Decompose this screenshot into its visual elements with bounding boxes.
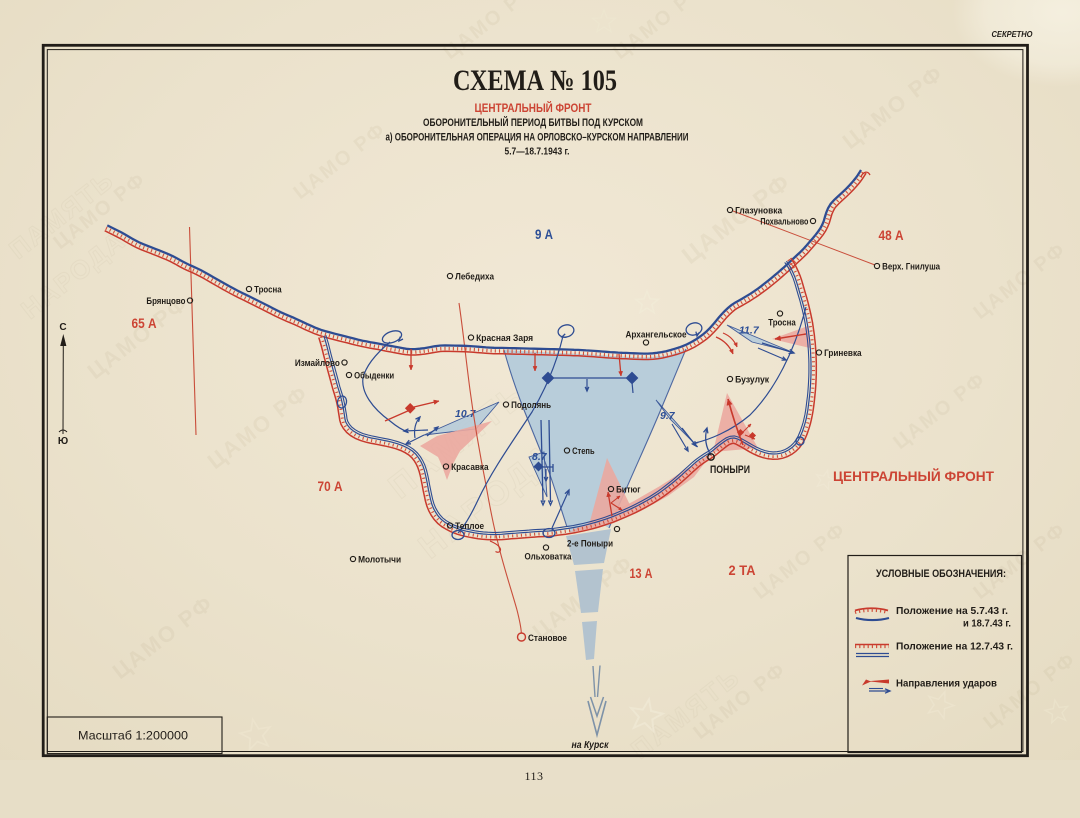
svg-text:65 А: 65 А: [132, 315, 157, 331]
svg-text:Битюг: Битюг: [616, 484, 641, 495]
svg-text:СХЕМА № 105: СХЕМА № 105: [453, 65, 617, 97]
svg-text:Похвальново: Похвальново: [760, 216, 808, 227]
svg-text:2 ТА: 2 ТА: [729, 562, 756, 578]
svg-text:Ольховатка: Ольховатка: [525, 552, 573, 563]
svg-text:ЦЕНТРАЛЬНЫЙ ФРОНТ: ЦЕНТРАЛЬНЫЙ ФРОНТ: [833, 467, 994, 484]
svg-text:С: С: [59, 322, 66, 333]
svg-text:5.7—18.7.1943 г.: 5.7—18.7.1943 г.: [505, 146, 570, 158]
svg-text:Архангельское: Архангельское: [626, 329, 687, 340]
svg-text:Брянцово: Брянцово: [146, 296, 185, 307]
svg-text:ОБОРОНИТЕЛЬНЫЙ ПЕРИОД БИТВЫ ПО: ОБОРОНИТЕЛЬНЫЙ ПЕРИОД БИТВЫ ПОД КУРСКОМ: [423, 116, 643, 129]
svg-text:СЕКРЕТНО: СЕКРЕТНО: [992, 29, 1033, 39]
svg-text:Молотычи: Молотычи: [358, 554, 401, 565]
svg-text:2-е Поныри: 2-е Поныри: [567, 539, 613, 550]
svg-text:Бузулук: Бузулук: [735, 374, 769, 385]
svg-text:113: 113: [524, 769, 543, 783]
svg-text:Верх. Гнилуша: Верх. Гнилуша: [882, 261, 941, 272]
svg-text:48 А: 48 А: [879, 227, 904, 243]
svg-text:Лебедиха: Лебедиха: [455, 271, 495, 282]
svg-text:Подолянь: Подолянь: [511, 400, 551, 411]
svg-text:Степь: Степь: [572, 446, 595, 457]
svg-text:Красная Заря: Красная Заря: [476, 333, 533, 344]
svg-text:Масштаб 1:200000: Масштаб 1:200000: [78, 729, 188, 743]
svg-text:УСЛОВНЫЕ ОБОЗНАЧЕНИЯ:: УСЛОВНЫЕ ОБОЗНАЧЕНИЯ:: [876, 568, 1006, 580]
svg-text:Ю: Ю: [58, 436, 68, 447]
svg-text:Обыденки: Обыденки: [354, 370, 394, 381]
svg-text:Положение на 12.7.43 г.: Положение на 12.7.43 г.: [896, 641, 1013, 653]
svg-text:Измайлово: Измайлово: [295, 358, 340, 369]
svg-text:на Курск: на Курск: [572, 740, 610, 751]
svg-text:9 А: 9 А: [535, 226, 553, 242]
svg-text:Направления ударов: Направления ударов: [896, 678, 997, 690]
svg-text:70 А: 70 А: [318, 478, 343, 494]
svg-text:Становое: Становое: [528, 633, 567, 644]
svg-text:и 18.7.43 г.: и 18.7.43 г.: [963, 618, 1011, 630]
svg-text:13 А: 13 А: [630, 565, 653, 581]
svg-text:11.7: 11.7: [739, 325, 760, 337]
svg-text:Тросна: Тросна: [254, 284, 282, 295]
svg-text:Гриневка: Гриневка: [824, 348, 862, 359]
svg-text:9.7: 9.7: [660, 410, 676, 422]
svg-text:Тросна: Тросна: [768, 318, 796, 329]
svg-text:Красавка: Красавка: [451, 462, 489, 473]
svg-text:Теплое: Теплое: [455, 521, 484, 532]
svg-text:Положение на 5.7.43 г.: Положение на 5.7.43 г.: [896, 605, 1008, 617]
svg-text:8.7: 8.7: [532, 451, 548, 463]
svg-text:ПОНЫРИ: ПОНЫРИ: [710, 464, 750, 476]
svg-text:а) ОБОРОНИТЕЛЬНАЯ ОПЕРАЦИЯ НА: а) ОБОРОНИТЕЛЬНАЯ ОПЕРАЦИЯ НА ОРЛОВСКО–К…: [386, 132, 689, 144]
svg-text:Глазуновка: Глазуновка: [735, 205, 783, 216]
svg-text:ЦЕНТРАЛЬНЫЙ ФРОНТ: ЦЕНТРАЛЬНЫЙ ФРОНТ: [475, 100, 593, 115]
